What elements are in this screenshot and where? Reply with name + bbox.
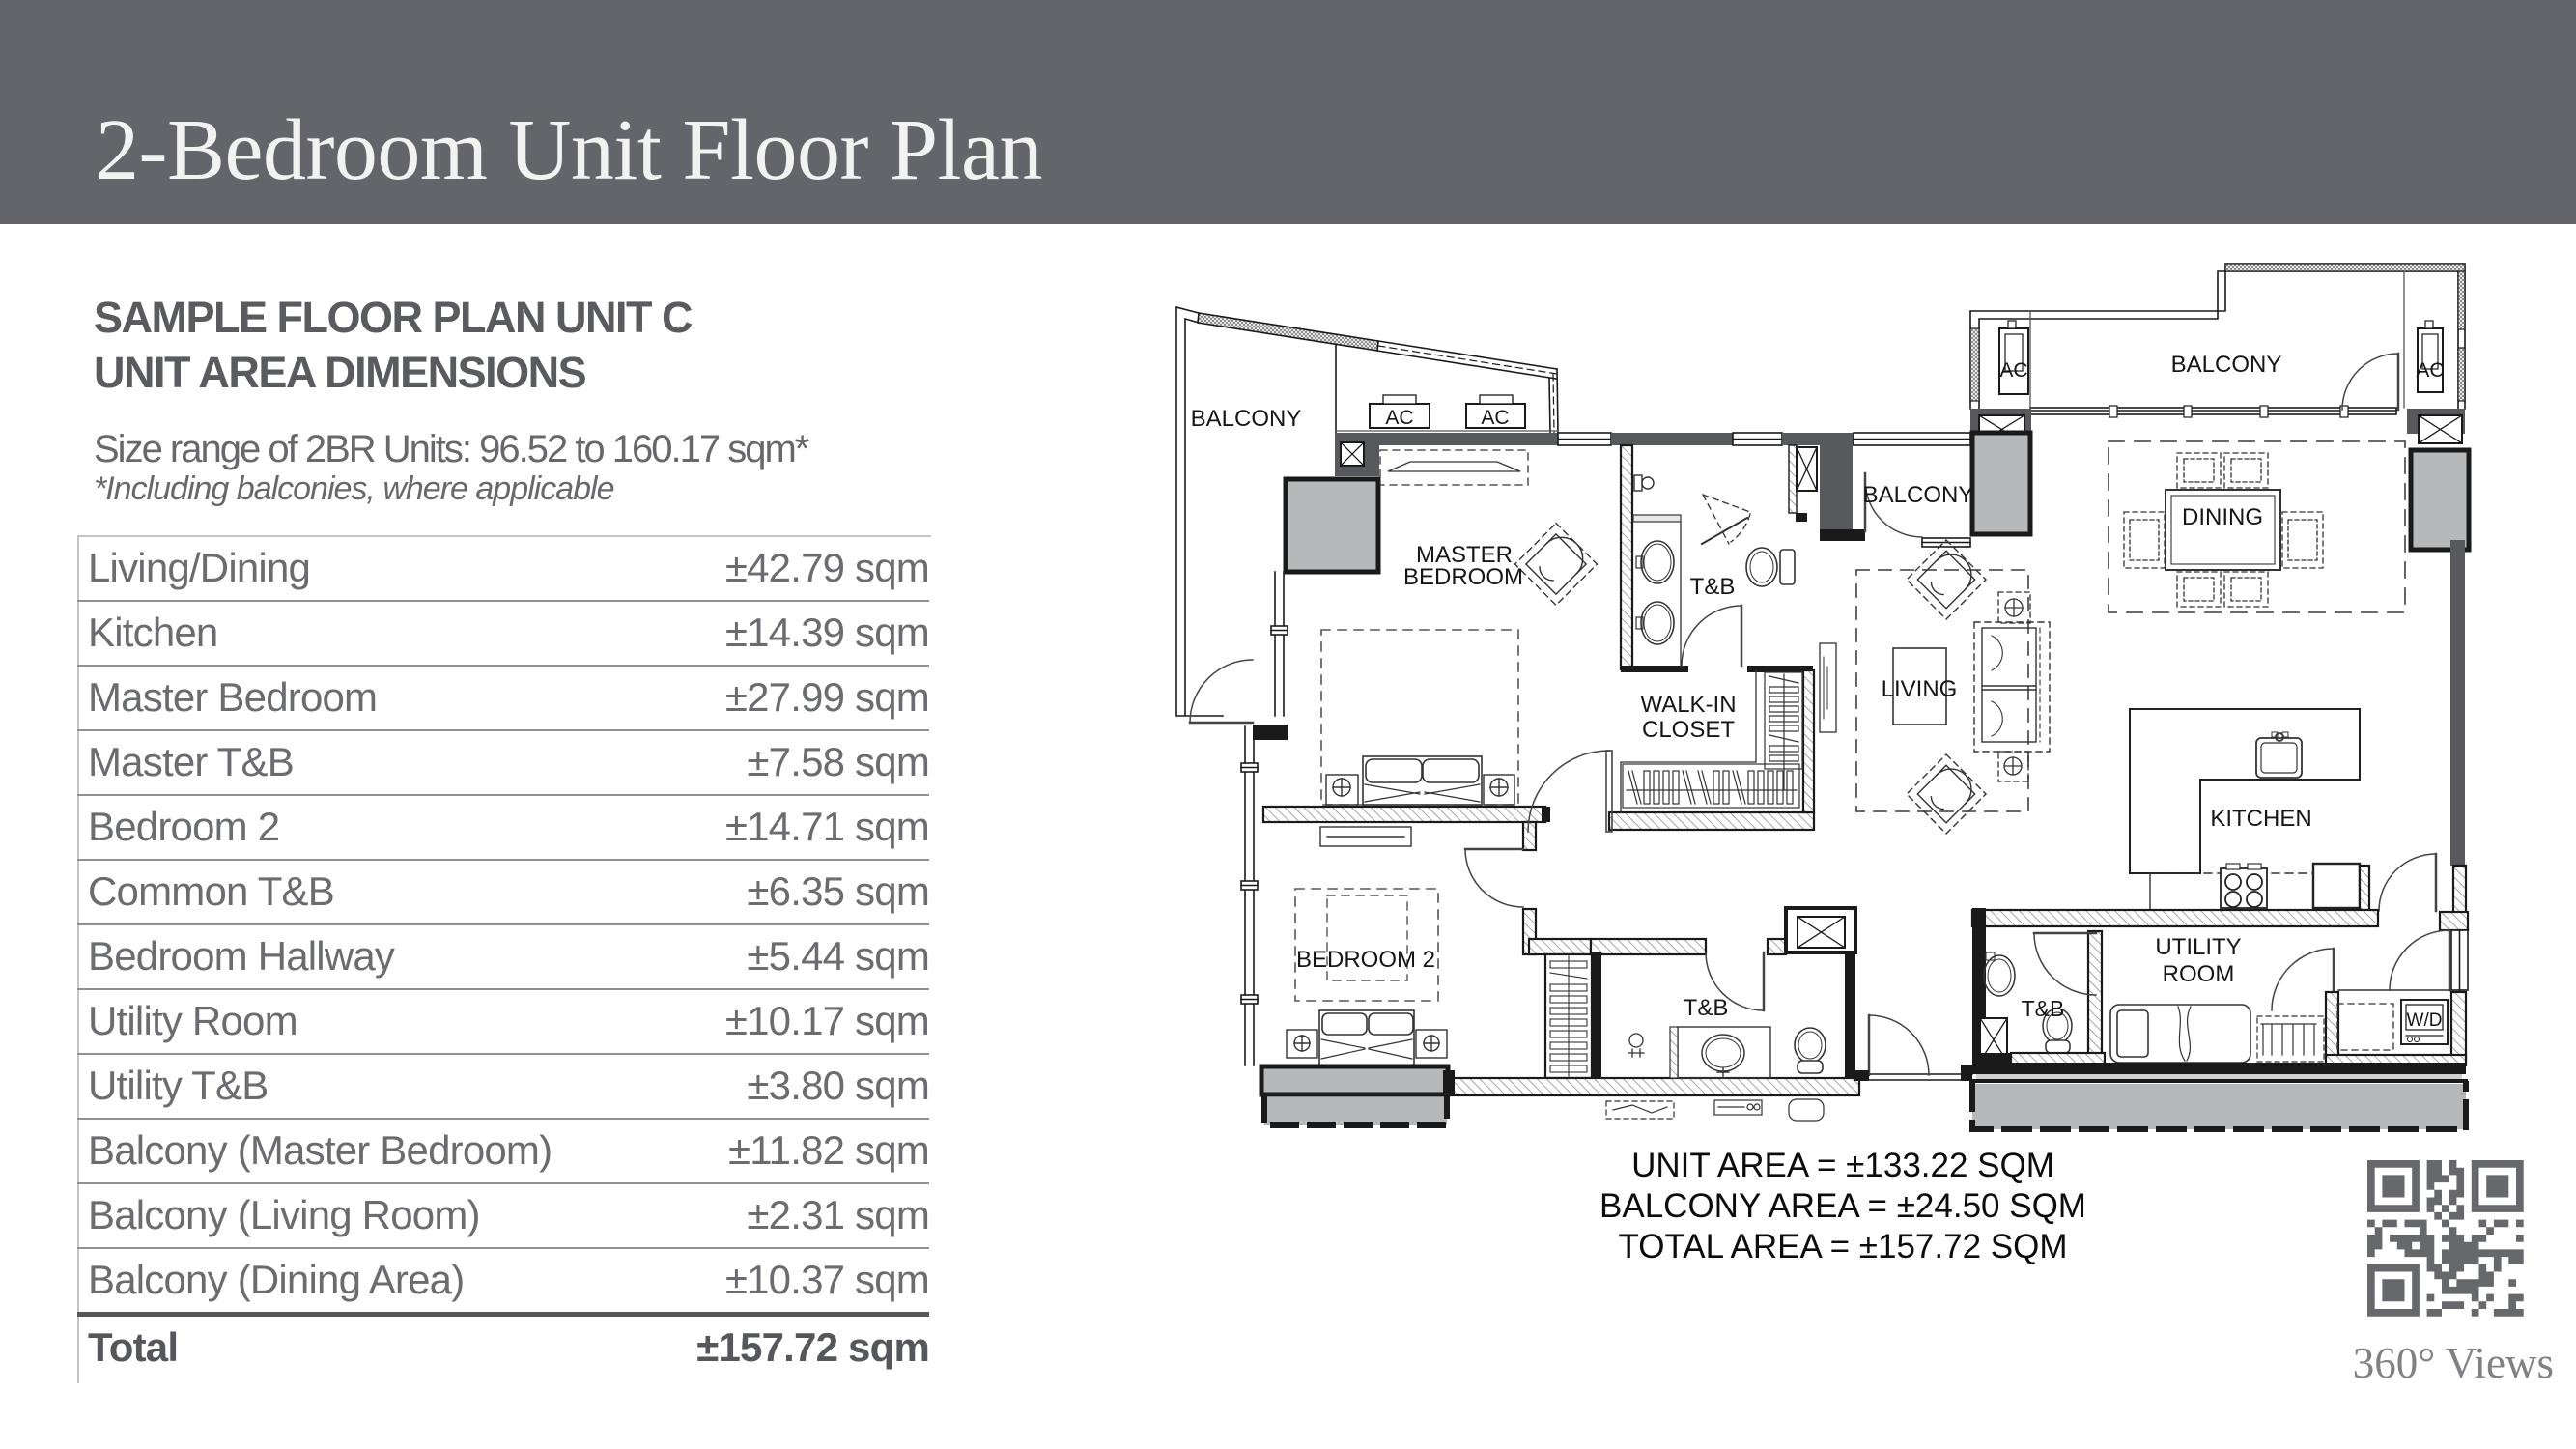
svg-text:DINING: DINING — [2182, 504, 2263, 530]
svg-text:T&B: T&B — [1690, 574, 1736, 600]
svg-text:AC: AC — [2416, 359, 2444, 382]
svg-text:BALCONY: BALCONY — [2171, 352, 2282, 378]
svg-text:BEDROOM 2: BEDROOM 2 — [1296, 947, 1435, 973]
svg-text:BALCONY: BALCONY — [1863, 482, 1974, 508]
svg-text:KITCHEN: KITCHEN — [2210, 806, 2311, 832]
svg-text:T&B: T&B — [2022, 996, 2065, 1021]
svg-text:CLOSET: CLOSET — [1642, 717, 1735, 743]
svg-text:W/D: W/D — [2407, 1010, 2443, 1031]
svg-text:LIVING: LIVING — [1882, 676, 1958, 702]
svg-text:AC: AC — [1999, 359, 2027, 382]
svg-text:ROOM: ROOM — [2163, 961, 2235, 987]
svg-text:AC: AC — [1385, 407, 1413, 429]
svg-text:BEDROOM: BEDROOM — [1403, 564, 1523, 590]
svg-text:UTILITY: UTILITY — [2155, 934, 2241, 960]
svg-text:AC: AC — [1481, 407, 1509, 429]
svg-text:WALK-IN: WALK-IN — [1640, 692, 1736, 718]
svg-text:BALCONY: BALCONY — [1191, 406, 1302, 432]
svg-text:T&B: T&B — [1684, 995, 1729, 1021]
